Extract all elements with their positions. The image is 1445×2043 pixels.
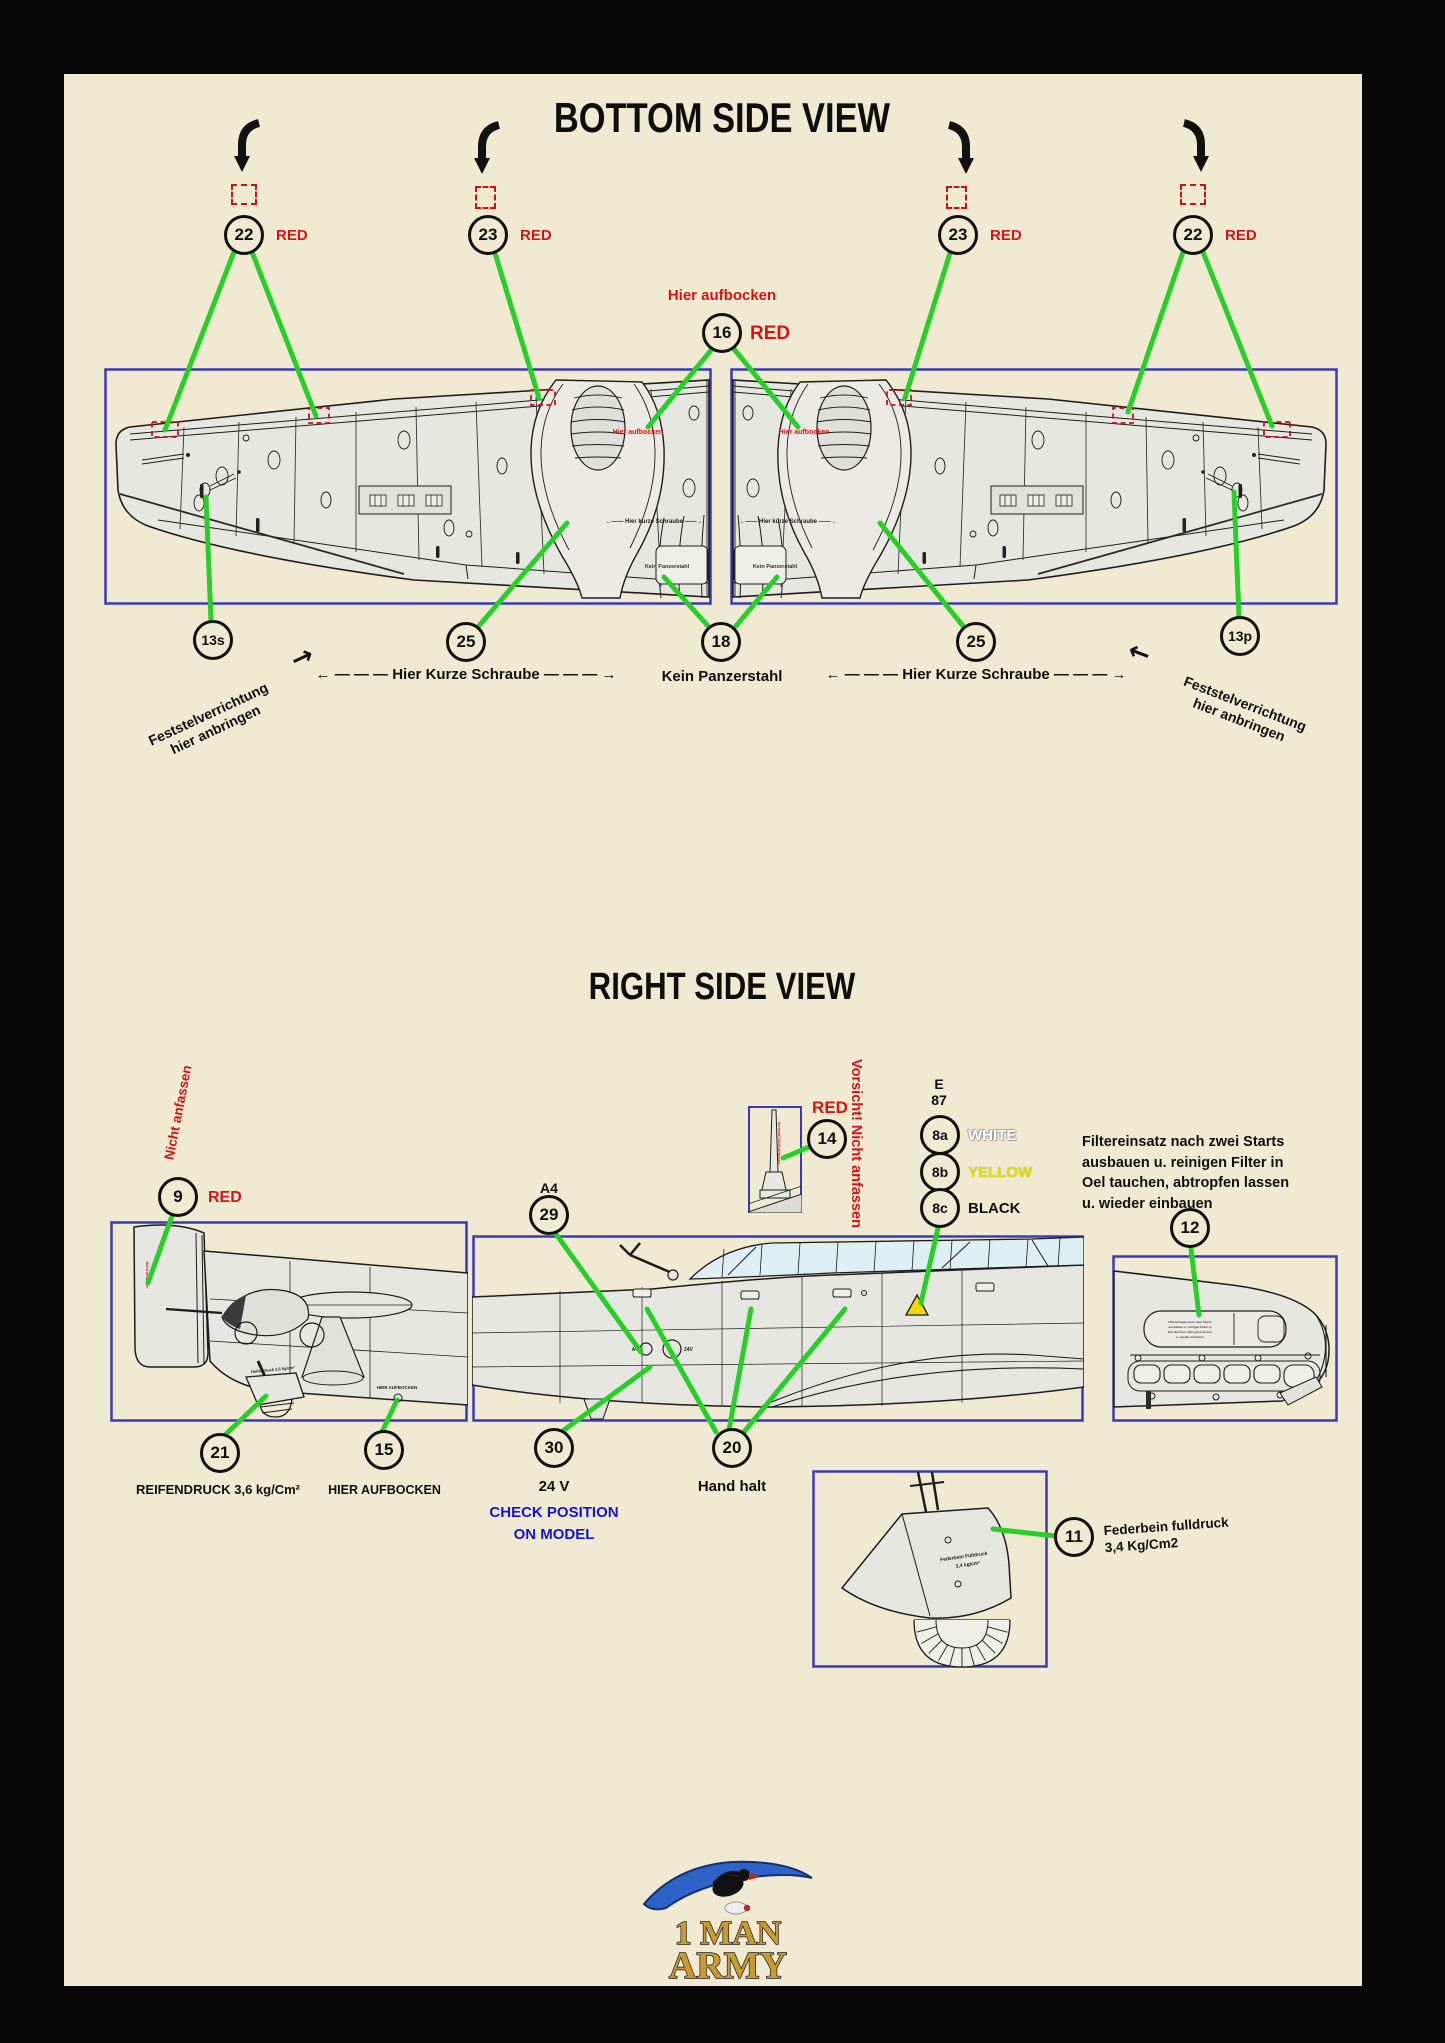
engine-cowl-drawing: Filtereinsatz nach zwei Starts ausbauen … — [1112, 1255, 1338, 1422]
callout-9: 9 — [158, 1177, 198, 1217]
filter-tiny-text: ausbauen u. reinigen Filter in — [1169, 1325, 1212, 1329]
mast-tiny-warning: Vorsicht! Nicht anfassen — [777, 1122, 781, 1164]
wing-tiny-kein: Kein Panzerstahl — [753, 564, 798, 570]
check-position-label: CHECK POSITION — [474, 1504, 634, 1521]
callout-18: 18 — [701, 622, 741, 662]
tiny-a4: A4 — [632, 1347, 639, 1353]
arrow-right-icon: → — [601, 666, 616, 683]
decal-placement-box — [475, 186, 496, 209]
arrow-left-icon: ← — [826, 666, 841, 683]
callout-21: 21 — [200, 1433, 240, 1473]
wing-tiny-aufbocken: Hier aufbocken — [779, 429, 830, 436]
hier-aufbocken-label: Hier aufbocken — [642, 287, 802, 304]
arrow-left-icon: ← — [316, 666, 331, 683]
callout-15: 15 — [364, 1430, 404, 1470]
callout-22-right: 22 — [1173, 215, 1213, 255]
callout-30: 30 — [534, 1428, 574, 1468]
color-tag: RED — [990, 227, 1022, 244]
part-code-a4: A4 — [519, 1180, 579, 1196]
callout-25-right: 25 — [956, 622, 996, 662]
wing-tiny-kein: Kein Panzerstahl — [645, 564, 690, 570]
callout-13s: 13s — [193, 620, 233, 660]
wing-tiny-aufbocken: Hier aufbocken — [613, 429, 664, 436]
color-tag: RED — [750, 323, 790, 345]
white-label: WHITE — [968, 1127, 1048, 1144]
wing-half — [106, 370, 711, 604]
callout-14: 14 — [807, 1119, 847, 1159]
wheel — [914, 1620, 1010, 1667]
bomb-crutch — [584, 1399, 610, 1419]
rotate-arrow-icon — [474, 120, 504, 176]
tiny-24v: 24V — [684, 1347, 694, 1353]
callout-16: 16 — [702, 313, 742, 353]
filter-tiny-text: u. wieder einbauen — [1176, 1335, 1204, 1339]
bottom-view-title: BOTTOM SIDE VIEW — [517, 94, 927, 142]
decal-placement-box — [946, 186, 967, 209]
callout-8b: 8b — [920, 1152, 960, 1192]
yellow-label: YELLOW — [968, 1164, 1048, 1181]
color-tag: RED — [276, 227, 308, 244]
right-view-title: RIGHT SIDE VIEW — [517, 966, 927, 1009]
on-model-label: ON MODEL — [474, 1526, 634, 1543]
callout-25-left: 25 — [446, 622, 486, 662]
callout-29: 29 — [529, 1195, 569, 1235]
filter-tiny-text: Oel tauchen, abtropfen lassen — [1168, 1330, 1212, 1334]
aerial-mast — [620, 1243, 672, 1273]
stencil-code: E87 — [917, 1076, 961, 1108]
volt-label: 24 V — [504, 1478, 604, 1495]
color-tag: RED — [800, 1098, 860, 1118]
rudder-tiny-warning: Nicht anfassen — [145, 1261, 149, 1289]
color-tag: RED — [208, 1189, 242, 1207]
antenna-inset-drawing: Vorsicht! Nicht anfassen — [748, 1106, 802, 1213]
callout-22-left: 22 — [224, 215, 264, 255]
color-tag: RED — [1225, 227, 1257, 244]
callout-23-right: 23 — [938, 215, 978, 255]
callout-12: 12 — [1170, 1208, 1210, 1248]
callout-13p: 13p — [1220, 616, 1260, 656]
hier-aufbocken-label-2: HIER AUFBOCKEN — [297, 1483, 472, 1497]
wing-tiny-kurze: ←—— Hier kurze Schraube ——→ — [739, 519, 836, 525]
callout-23-left: 23 — [468, 215, 508, 255]
fuselage-side-drawing: A4 24V — [472, 1235, 1084, 1422]
black-label: BLACK — [968, 1200, 1048, 1217]
kurze-schraube-row-left: ← — — — Hier Kurze Schraube — — — → — [306, 666, 626, 683]
instruction-sheet: BOTTOM SIDE VIEW 22 RED 23 RED 23 RED 22… — [0, 0, 1445, 2043]
paper-panel — [64, 74, 1362, 1986]
tiny-hier-aufbocken: HIER AUFBOCKEN — [377, 1385, 418, 1390]
decal-placement-box — [1180, 184, 1206, 205]
color-tag: RED — [520, 227, 552, 244]
vorsicht-label: Vorsicht! Nicht anfassen — [848, 1056, 864, 1231]
kein-panzerstahl-label: Kein Panzerstahl — [642, 668, 802, 685]
filter-tiny-text: Filtereinsatz nach zwei Starts — [1168, 1320, 1211, 1324]
arrow-right-icon: → — [1111, 666, 1126, 683]
kurze-schraube-row-right: ← — — — Hier Kurze Schraube — — — → — [816, 666, 1136, 683]
rotate-arrow-icon — [944, 120, 974, 176]
brand-logo: 1 MAN ARMY — [636, 1852, 820, 1986]
callout-11: 11 — [1054, 1517, 1094, 1557]
callout-8a: 8a — [920, 1115, 960, 1155]
decal-placement-box — [231, 184, 257, 205]
rotate-arrow-icon — [1179, 118, 1209, 174]
callout-20: 20 — [712, 1428, 752, 1468]
wing-bottom-drawing: Hier aufbocken Hier aufbocken ←—— Hier k… — [104, 368, 1338, 605]
rotate-arrow-icon — [234, 118, 264, 174]
landing-gear-drawing: Federbein Fülldruck 3,4 kg/cm² — [812, 1470, 1048, 1668]
hand-halt-label: Hand halt — [672, 1478, 792, 1495]
wing-tiny-kurze: ←—— Hier kurze Schraube ——→ — [605, 519, 702, 525]
callout-8c: 8c — [920, 1188, 960, 1228]
filter-note: Filtereinsatz nach zwei Starts ausbauen … — [1082, 1132, 1332, 1214]
logo-line2: ARMY — [669, 1945, 787, 1986]
tail-side-drawing: Nicht anfassen Reifendruck 3,6 kg/cm² HI… — [110, 1221, 468, 1422]
antenna-mast — [770, 1110, 778, 1172]
